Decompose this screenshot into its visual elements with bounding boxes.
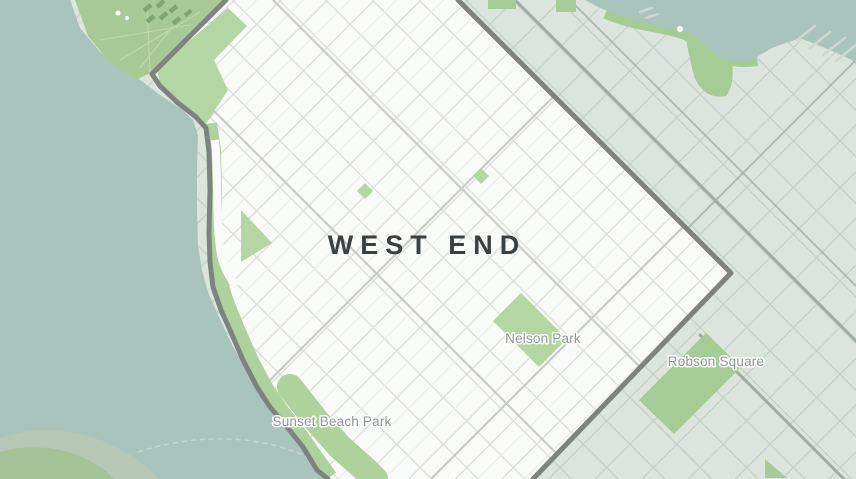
small-park-b (556, 0, 576, 12)
park-building-dot (125, 16, 129, 20)
map-canvas[interactable]: WEST END Nelson Park Robson Square Sunse… (0, 0, 856, 479)
park-label-robson-square: Robson Square (668, 354, 764, 369)
region-label: WEST END (328, 230, 527, 260)
small-park-a (488, 0, 516, 9)
map-viewport: WEST END Nelson Park Robson Square Sunse… (0, 0, 856, 479)
park-building-dot (116, 11, 121, 16)
park-label-nelson: Nelson Park (505, 331, 581, 346)
shore-marker-dot (677, 26, 683, 32)
park-label-sunset-beach: Sunset Beach Park (273, 414, 392, 429)
